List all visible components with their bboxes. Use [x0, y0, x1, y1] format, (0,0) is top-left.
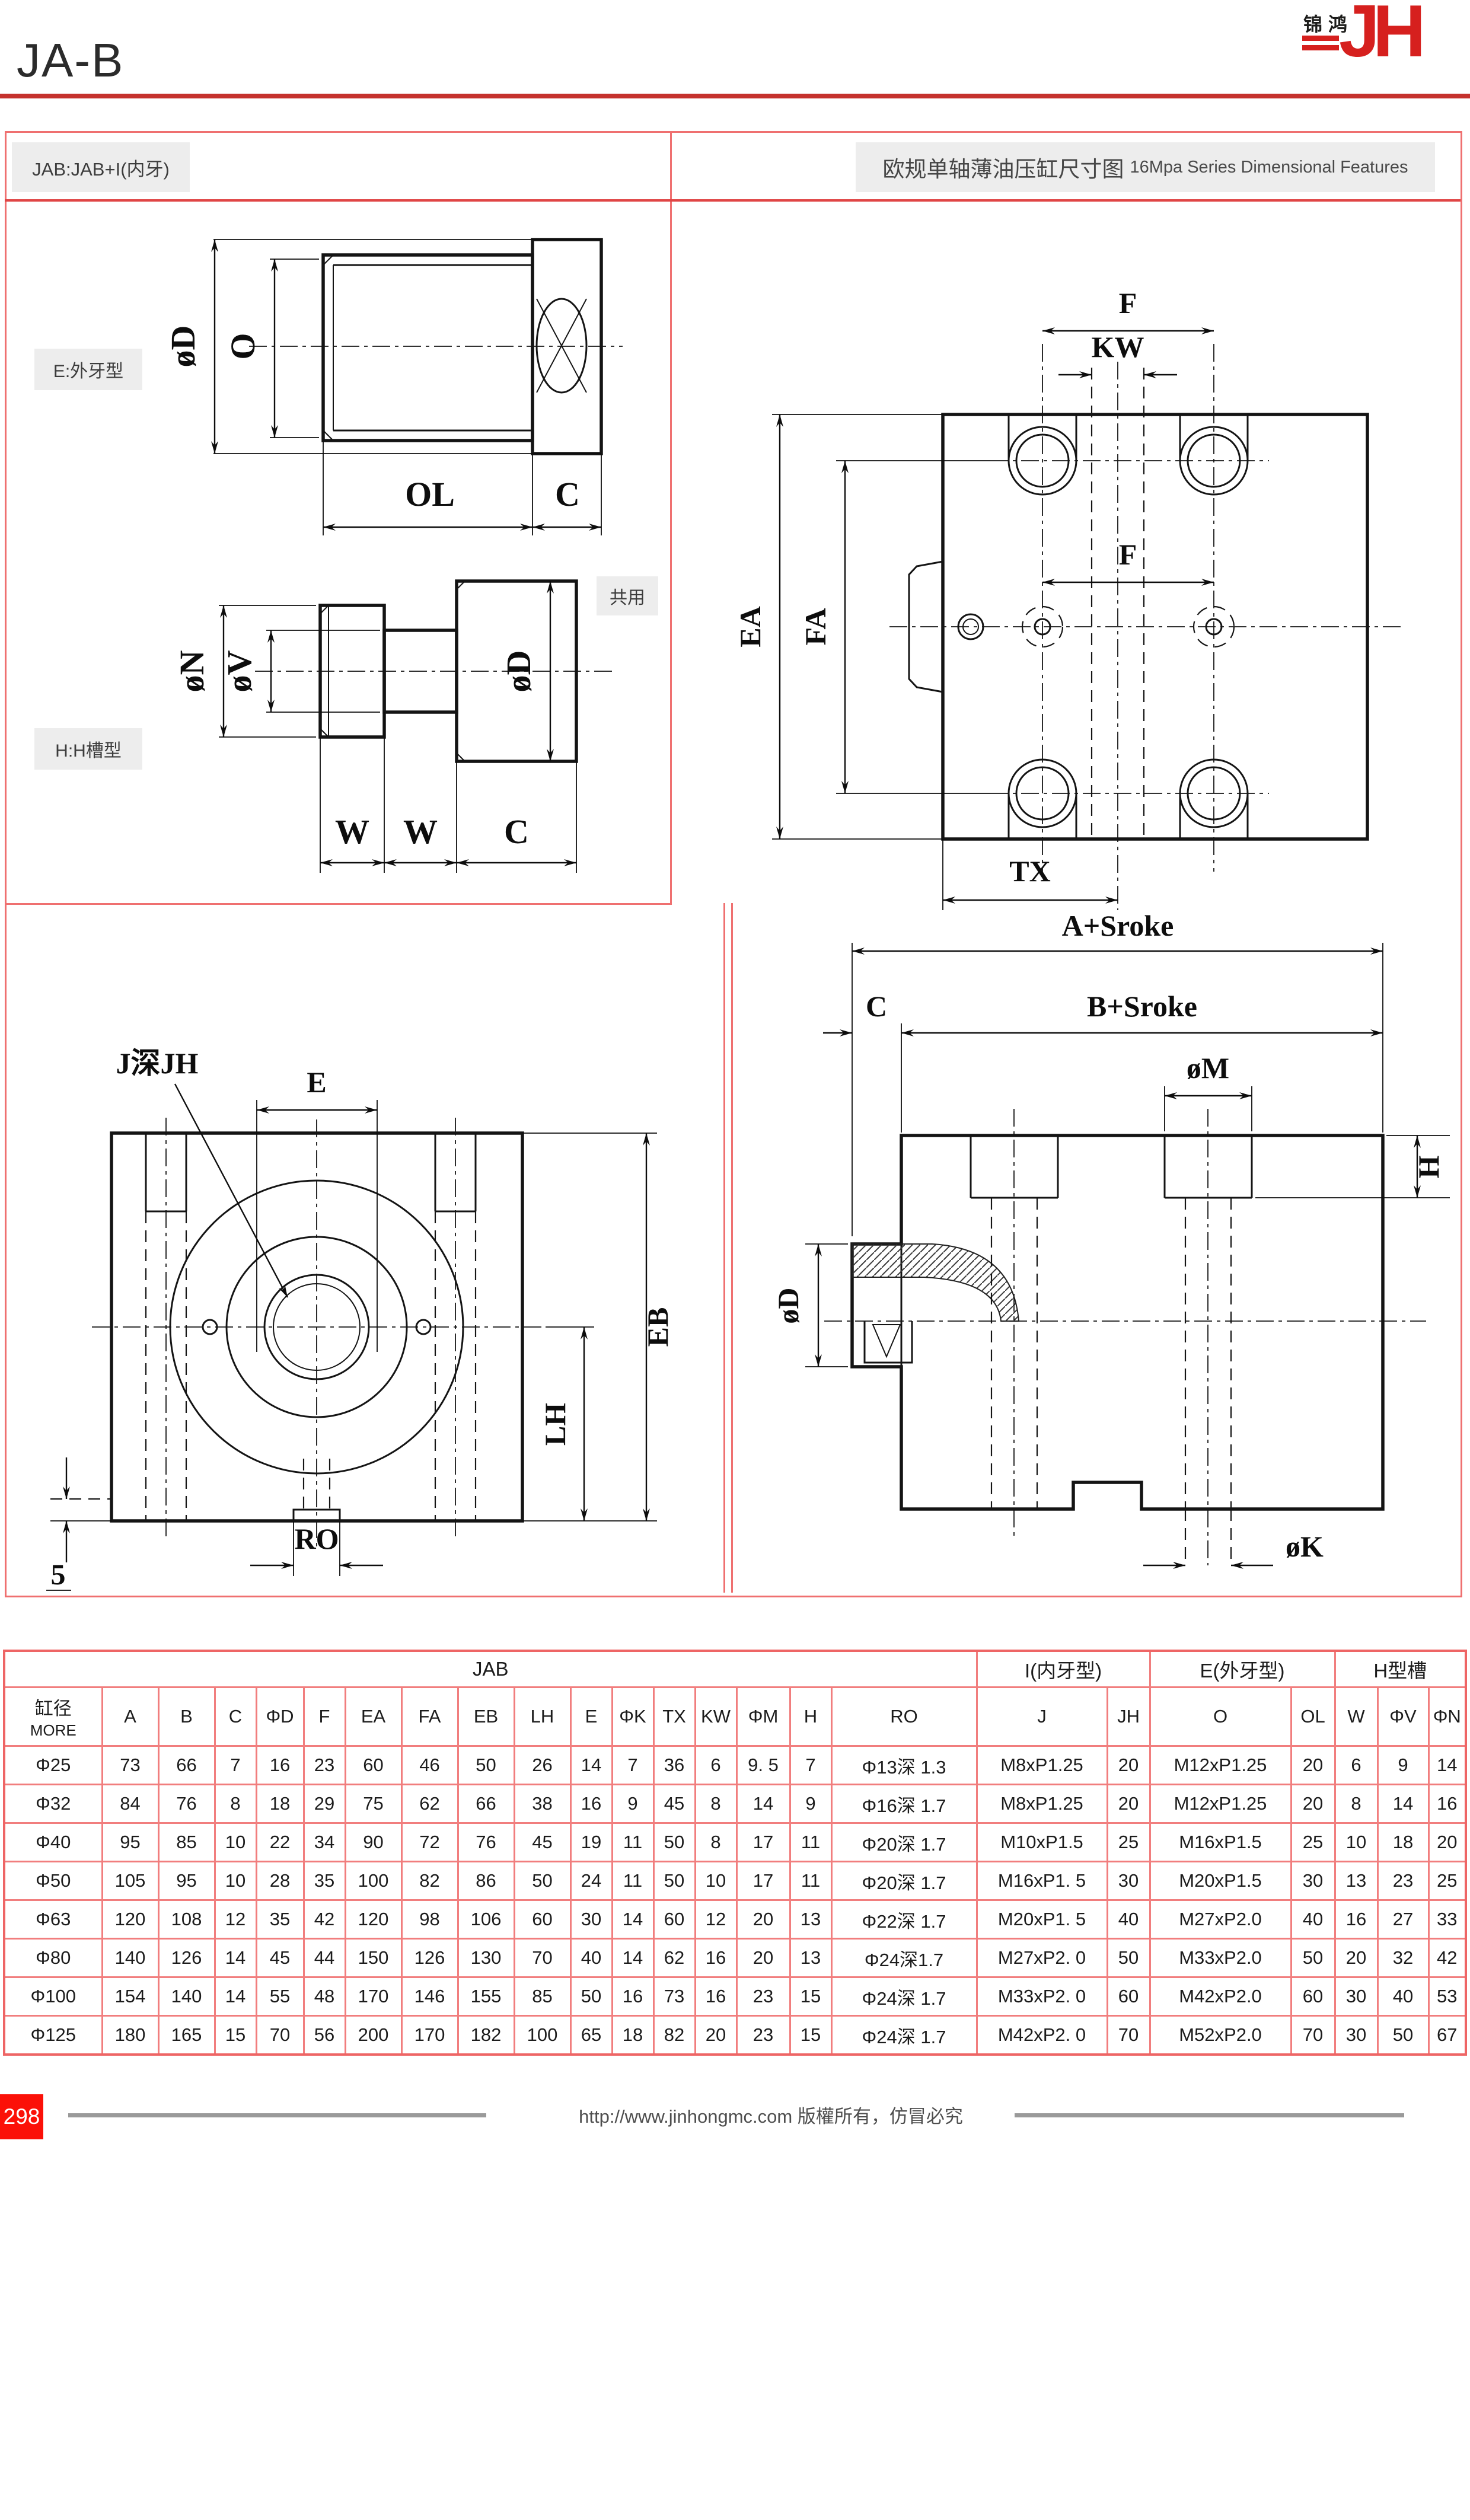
value-cell: 140	[158, 1977, 215, 2016]
value-cell: 10	[695, 1862, 736, 1900]
value-cell: 126	[401, 1939, 458, 1977]
table-row: Φ631201081235421209810660301460122013Φ22…	[4, 1900, 1466, 1939]
top-view-drawing: F KW F EA FA TX	[735, 219, 1465, 925]
e-type-label: E:外牙型	[34, 349, 142, 390]
value-cell: 50	[1107, 1939, 1150, 1977]
value-cell: 19	[570, 1823, 612, 1862]
value-cell: 14	[215, 1977, 256, 2016]
value-cell: M20xP1.5	[1150, 1862, 1291, 1900]
column-header: H	[790, 1688, 831, 1746]
value-cell: 16	[570, 1785, 612, 1823]
value-cell: 24	[570, 1862, 612, 1900]
value-cell: 8	[1335, 1785, 1377, 1823]
value-cell: 26	[514, 1746, 570, 1785]
value-cell: 60	[345, 1746, 401, 1785]
value-cell: 70	[1107, 2016, 1150, 2055]
value-cell: 16	[1335, 1900, 1377, 1939]
value-cell: 50	[458, 1746, 514, 1785]
bottom-section-divider	[723, 903, 733, 1593]
value-cell: 16	[695, 1939, 736, 1977]
dimension-table: JABI(内牙型)E(外牙型)H型槽缸径MOREABCΦDFEAFAEBLHEΦ…	[3, 1650, 1467, 2056]
dim-label: C	[866, 990, 887, 1023]
dim-label: EB	[641, 1307, 674, 1347]
title-rule	[0, 94, 1470, 98]
value-cell: 7	[790, 1746, 831, 1785]
table-row: Φ10015414014554817014615585501673162315Φ…	[4, 1977, 1466, 2016]
value-cell: 140	[102, 1939, 158, 1977]
bore-cell: Φ63	[4, 1900, 102, 1939]
value-cell: 13	[790, 1939, 831, 1977]
value-cell: 170	[401, 2016, 458, 2055]
value-cell: 44	[304, 1939, 345, 1977]
value-cell: 16	[1428, 1785, 1466, 1823]
column-header: JH	[1107, 1688, 1150, 1746]
value-cell: 14	[612, 1900, 653, 1939]
value-cell: M12xP1.25	[1150, 1746, 1291, 1785]
value-cell: M8xP1.25	[977, 1785, 1107, 1823]
section-view-drawing: A+Sroke C B+Sroke øM H øD øK	[735, 913, 1465, 1595]
dim-label: E	[307, 1066, 326, 1099]
column-header: ΦK	[612, 1688, 653, 1746]
value-cell: 65	[570, 2016, 612, 2055]
value-cell: 11	[790, 1823, 831, 1862]
value-cell: M27xP2. 0	[977, 1939, 1107, 1977]
value-cell: 9	[612, 1785, 653, 1823]
value-cell: 17	[736, 1823, 790, 1862]
dim-label: øV	[220, 650, 259, 692]
value-cell: Φ24深1.7	[831, 1939, 977, 1977]
value-cell: 55	[256, 1977, 304, 2016]
section-title-cn: 欧规单轴薄油压缸尺寸图	[882, 151, 1124, 183]
value-cell: 9	[1377, 1746, 1428, 1785]
value-cell: 76	[158, 1785, 215, 1823]
catalog-page: { "page": { "title": "JA-B", "page_numbe…	[0, 0, 1470, 2520]
table-group-header: H型槽	[1335, 1651, 1466, 1688]
value-cell: 50	[653, 1823, 695, 1862]
logo-bar-icon	[1302, 36, 1339, 41]
value-cell: 50	[514, 1862, 570, 1900]
value-cell: 45	[653, 1785, 695, 1823]
value-cell: 7	[215, 1746, 256, 1785]
table-group-header: I(内牙型)	[977, 1651, 1150, 1688]
dim-label: øK	[1286, 1530, 1324, 1563]
value-cell: 45	[514, 1823, 570, 1862]
value-cell: 86	[458, 1862, 514, 1900]
table-group-row: JABI(内牙型)E(外牙型)H型槽	[4, 1651, 1466, 1688]
value-cell: 95	[158, 1862, 215, 1900]
bore-column-header: 缸径MORE	[4, 1688, 102, 1746]
value-cell: 66	[158, 1746, 215, 1785]
bore-cell: Φ25	[4, 1746, 102, 1785]
column-header: J	[977, 1688, 1107, 1746]
h-type-label: H:H槽型	[34, 728, 142, 770]
value-cell: 11	[612, 1862, 653, 1900]
dim-label: FA	[799, 608, 832, 646]
column-header: ΦV	[1377, 1688, 1428, 1746]
value-cell: 170	[345, 1977, 401, 2016]
value-cell: 126	[158, 1939, 215, 1977]
value-cell: M12xP1.25	[1150, 1785, 1291, 1823]
value-cell: 50	[1291, 1939, 1335, 1977]
dim-label: RO	[295, 1522, 339, 1555]
value-cell: 48	[304, 1977, 345, 2016]
value-cell: 42	[1428, 1939, 1466, 1977]
value-cell: 75	[345, 1785, 401, 1823]
value-cell: 20	[736, 1939, 790, 1977]
value-cell: 130	[458, 1939, 514, 1977]
value-cell: 66	[458, 1785, 514, 1823]
value-cell: 30	[570, 1900, 612, 1939]
column-header: TX	[653, 1688, 695, 1746]
bore-cell: Φ125	[4, 2016, 102, 2055]
bore-cell: Φ80	[4, 1939, 102, 1977]
value-cell: 20	[1107, 1746, 1150, 1785]
value-cell: 29	[304, 1785, 345, 1823]
column-header: A	[102, 1688, 158, 1746]
table-group-header: JAB	[4, 1651, 977, 1688]
value-cell: 10	[1335, 1823, 1377, 1862]
value-cell: 60	[514, 1900, 570, 1939]
value-cell: 23	[1377, 1862, 1428, 1900]
footer-copyright: http://www.jinhongmc.com 版權所有，仿冒必究	[522, 2101, 1020, 2128]
value-cell: 15	[215, 2016, 256, 2055]
bore-cell: Φ50	[4, 1862, 102, 1900]
value-cell: 14	[1428, 1746, 1466, 1785]
value-cell: 50	[1377, 2016, 1428, 2055]
dim-label: LH	[538, 1403, 572, 1446]
value-cell: 45	[256, 1939, 304, 1977]
value-cell: 70	[1291, 2016, 1335, 2055]
value-cell: 85	[158, 1823, 215, 1862]
value-cell: 40	[570, 1939, 612, 1977]
value-cell: 98	[401, 1900, 458, 1939]
header-divider-line	[5, 199, 1461, 202]
column-header: ΦD	[256, 1688, 304, 1746]
value-cell: 84	[102, 1785, 158, 1823]
dim-label: W	[403, 812, 438, 851]
section-header: 欧规单轴薄油压缸尺寸图 16Mpa Series Dimensional Fea…	[856, 142, 1435, 192]
value-cell: 100	[514, 2016, 570, 2055]
column-header: EB	[458, 1688, 514, 1746]
value-cell: 20	[1291, 1785, 1335, 1823]
value-cell: 30	[1291, 1862, 1335, 1900]
page-number-badge: 298	[0, 2094, 43, 2139]
value-cell: 14	[570, 1746, 612, 1785]
value-cell: 62	[653, 1939, 695, 1977]
dim-label: TX	[1009, 854, 1050, 888]
column-header: LH	[514, 1688, 570, 1746]
value-cell: 62	[401, 1785, 458, 1823]
value-cell: 154	[102, 1977, 158, 2016]
column-header: RO	[831, 1688, 977, 1746]
dim-label: B+Sroke	[1087, 990, 1197, 1023]
value-cell: 72	[401, 1823, 458, 1862]
bore-cell: Φ32	[4, 1785, 102, 1823]
value-cell: M10xP1.5	[977, 1823, 1107, 1862]
value-cell: 146	[401, 1977, 458, 2016]
brand-logo-letters: JH	[1339, 0, 1419, 74]
value-cell: 34	[304, 1823, 345, 1862]
dim-label: F	[1119, 286, 1137, 320]
value-cell: M16xP1. 5	[977, 1862, 1107, 1900]
value-cell: 23	[736, 1977, 790, 2016]
value-cell: 32	[1377, 1939, 1428, 1977]
dim-label: F	[1119, 538, 1137, 571]
value-cell: 82	[401, 1862, 458, 1900]
value-cell: 9. 5	[736, 1746, 790, 1785]
value-cell: 20	[1291, 1746, 1335, 1785]
value-cell: 38	[514, 1785, 570, 1823]
value-cell: 90	[345, 1823, 401, 1862]
value-cell: 36	[653, 1746, 695, 1785]
value-cell: 10	[215, 1823, 256, 1862]
value-cell: 17	[736, 1862, 790, 1900]
value-cell: 82	[653, 2016, 695, 2055]
value-cell: 13	[1335, 1862, 1377, 1900]
value-cell: 12	[695, 1900, 736, 1939]
bore-cell: Φ40	[4, 1823, 102, 1862]
column-header: KW	[695, 1688, 736, 1746]
value-cell: 6	[1335, 1746, 1377, 1785]
value-cell: Φ24深 1.7	[831, 1977, 977, 2016]
value-cell: 182	[458, 2016, 514, 2055]
value-cell: 20	[1428, 1823, 1466, 1862]
dim-label: J深JH	[116, 1047, 199, 1080]
value-cell: M27xP2.0	[1150, 1900, 1291, 1939]
column-header: W	[1335, 1688, 1377, 1746]
value-cell: M42xP2. 0	[977, 2016, 1107, 2055]
value-cell: 13	[790, 1900, 831, 1939]
value-cell: 85	[514, 1977, 570, 2016]
value-cell: 30	[1107, 1862, 1150, 1900]
column-header: ΦN	[1428, 1688, 1466, 1746]
value-cell: Φ22深 1.7	[831, 1900, 977, 1939]
front-view-drawing: J深JH E EB LH RO 5	[36, 984, 700, 1595]
section-title-en: 16Mpa Series Dimensional Features	[1130, 158, 1408, 177]
dim-label: øD	[771, 1287, 805, 1323]
value-cell: 18	[256, 1785, 304, 1823]
value-cell: 106	[458, 1900, 514, 1939]
value-cell: 22	[256, 1823, 304, 1862]
column-header: EA	[345, 1688, 401, 1746]
footer-rule-right	[1015, 2113, 1404, 2117]
value-cell: 10	[215, 1862, 256, 1900]
value-cell: 155	[458, 1977, 514, 2016]
value-cell: 50	[570, 1977, 612, 2016]
value-cell: M8xP1.25	[977, 1746, 1107, 1785]
value-cell: 16	[695, 1977, 736, 2016]
value-cell: M20xP1. 5	[977, 1900, 1107, 1939]
value-cell: M52xP2.0	[1150, 2016, 1291, 2055]
value-cell: 165	[158, 2016, 215, 2055]
value-cell: Φ20深 1.7	[831, 1823, 977, 1862]
value-cell: M16xP1.5	[1150, 1823, 1291, 1862]
value-cell: 9	[790, 1785, 831, 1823]
column-header: C	[215, 1688, 256, 1746]
value-cell: 35	[304, 1862, 345, 1900]
value-cell: 73	[102, 1746, 158, 1785]
value-cell: 67	[1428, 2016, 1466, 2055]
page-title: JA-B	[17, 37, 124, 84]
value-cell: 14	[215, 1939, 256, 1977]
logo-bar-icon	[1302, 45, 1339, 50]
value-cell: 28	[256, 1862, 304, 1900]
dim-label: øM	[1187, 1051, 1229, 1084]
value-cell: M42xP2.0	[1150, 1977, 1291, 2016]
value-cell: 33	[1428, 1900, 1466, 1939]
footer-rule-left	[68, 2113, 486, 2117]
value-cell: 18	[612, 2016, 653, 2055]
dim-label: øD	[499, 650, 538, 693]
value-cell: 14	[736, 1785, 790, 1823]
value-cell: 6	[695, 1746, 736, 1785]
dim-label: C	[555, 475, 580, 513]
value-cell: 25	[1428, 1862, 1466, 1900]
dim-label: OL	[405, 475, 455, 513]
value-cell: Φ24深 1.7	[831, 2016, 977, 2055]
column-header: F	[304, 1688, 345, 1746]
table-row: Φ5010595102835100828650241150101711Φ20深 …	[4, 1862, 1466, 1900]
table-row: Φ4095851022349072764519115081711Φ20深 1.7…	[4, 1823, 1466, 1862]
value-cell: Φ16深 1.7	[831, 1785, 977, 1823]
value-cell: M33xP2.0	[1150, 1939, 1291, 1977]
table-row: Φ3284768182975626638169458149Φ16深 1.7M8x…	[4, 1785, 1466, 1823]
value-cell: 105	[102, 1862, 158, 1900]
value-cell: 8	[215, 1785, 256, 1823]
value-cell: 25	[1291, 1823, 1335, 1862]
value-cell: 20	[736, 1900, 790, 1939]
dim-label: C	[504, 812, 529, 851]
value-cell: 120	[345, 1900, 401, 1939]
value-cell: 8	[695, 1823, 736, 1862]
dim-label: KW	[1092, 330, 1144, 363]
value-cell: 50	[653, 1862, 695, 1900]
value-cell: 108	[158, 1900, 215, 1939]
value-cell: 35	[256, 1900, 304, 1939]
value-cell: 30	[1335, 1977, 1377, 2016]
model-code-label: JAB:JAB+I(内牙)	[12, 142, 190, 192]
value-cell: M33xP2. 0	[977, 1977, 1107, 2016]
value-cell: 100	[345, 1862, 401, 1900]
column-header: B	[158, 1688, 215, 1746]
value-cell: 15	[790, 2016, 831, 2055]
value-cell: 60	[653, 1900, 695, 1939]
value-cell: 120	[102, 1900, 158, 1939]
value-cell: 20	[1335, 1939, 1377, 1977]
table-row: Φ25736671623604650261473669. 57Φ13深 1.3M…	[4, 1746, 1466, 1785]
value-cell: 27	[1377, 1900, 1428, 1939]
value-cell: 14	[612, 1939, 653, 1977]
value-cell: 11	[612, 1823, 653, 1862]
dim-label: øN	[173, 650, 211, 692]
table-group-header: E(外牙型)	[1150, 1651, 1335, 1688]
value-cell: 12	[215, 1900, 256, 1939]
dim-label: 5	[51, 1558, 66, 1591]
value-cell: 180	[102, 2016, 158, 2055]
table-row: Φ8014012614454415012613070401462162013Φ2…	[4, 1939, 1466, 1977]
value-cell: 11	[790, 1862, 831, 1900]
value-cell: 40	[1377, 1977, 1428, 2016]
dim-label: øD	[164, 326, 202, 368]
value-cell: 40	[1107, 1900, 1150, 1939]
dim-label: W	[335, 812, 369, 851]
dim-label: EA	[734, 606, 767, 647]
dim-label: O	[224, 333, 262, 359]
h-type-drawing: øN øV øD W W C	[166, 569, 634, 901]
column-header: FA	[401, 1688, 458, 1746]
brand-logo: 锦鸿 JH	[1299, 5, 1468, 76]
value-cell: 70	[256, 2016, 304, 2055]
column-header: O	[1150, 1688, 1291, 1746]
value-cell: 56	[304, 2016, 345, 2055]
bore-cell: Φ100	[4, 1977, 102, 2016]
value-cell: 20	[1107, 1785, 1150, 1823]
value-cell: Φ13深 1.3	[831, 1746, 977, 1785]
value-cell: 60	[1291, 1977, 1335, 2016]
value-cell: 42	[304, 1900, 345, 1939]
value-cell: 76	[458, 1823, 514, 1862]
value-cell: 53	[1428, 1977, 1466, 2016]
column-header: OL	[1291, 1688, 1335, 1746]
value-cell: 30	[1335, 2016, 1377, 2055]
dim-label: H	[1412, 1155, 1445, 1178]
table-row: Φ125180165157056200170182100651882202315…	[4, 2016, 1466, 2055]
value-cell: 60	[1107, 1977, 1150, 2016]
column-header: ΦM	[736, 1688, 790, 1746]
value-cell: 23	[304, 1746, 345, 1785]
column-header: E	[570, 1688, 612, 1746]
value-cell: 7	[612, 1746, 653, 1785]
value-cell: 40	[1291, 1900, 1335, 1939]
table-header-row: 缸径MOREABCΦDFEAFAEBLHEΦKTXKWΦMHROJJHOOLWΦ…	[4, 1688, 1466, 1746]
value-cell: 18	[1377, 1823, 1428, 1862]
value-cell: 23	[736, 2016, 790, 2055]
value-cell: 46	[401, 1746, 458, 1785]
value-cell: Φ20深 1.7	[831, 1862, 977, 1900]
value-cell: 8	[695, 1785, 736, 1823]
value-cell: 70	[514, 1939, 570, 1977]
value-cell: 14	[1377, 1785, 1428, 1823]
value-cell: 150	[345, 1939, 401, 1977]
value-cell: 16	[256, 1746, 304, 1785]
value-cell: 73	[653, 1977, 695, 2016]
value-cell: 20	[695, 2016, 736, 2055]
value-cell: 15	[790, 1977, 831, 2016]
value-cell: 16	[612, 1977, 653, 2016]
value-cell: 25	[1107, 1823, 1150, 1862]
dim-label: A+Sroke	[1062, 909, 1174, 942]
value-cell: 95	[102, 1823, 158, 1862]
value-cell: 200	[345, 2016, 401, 2055]
